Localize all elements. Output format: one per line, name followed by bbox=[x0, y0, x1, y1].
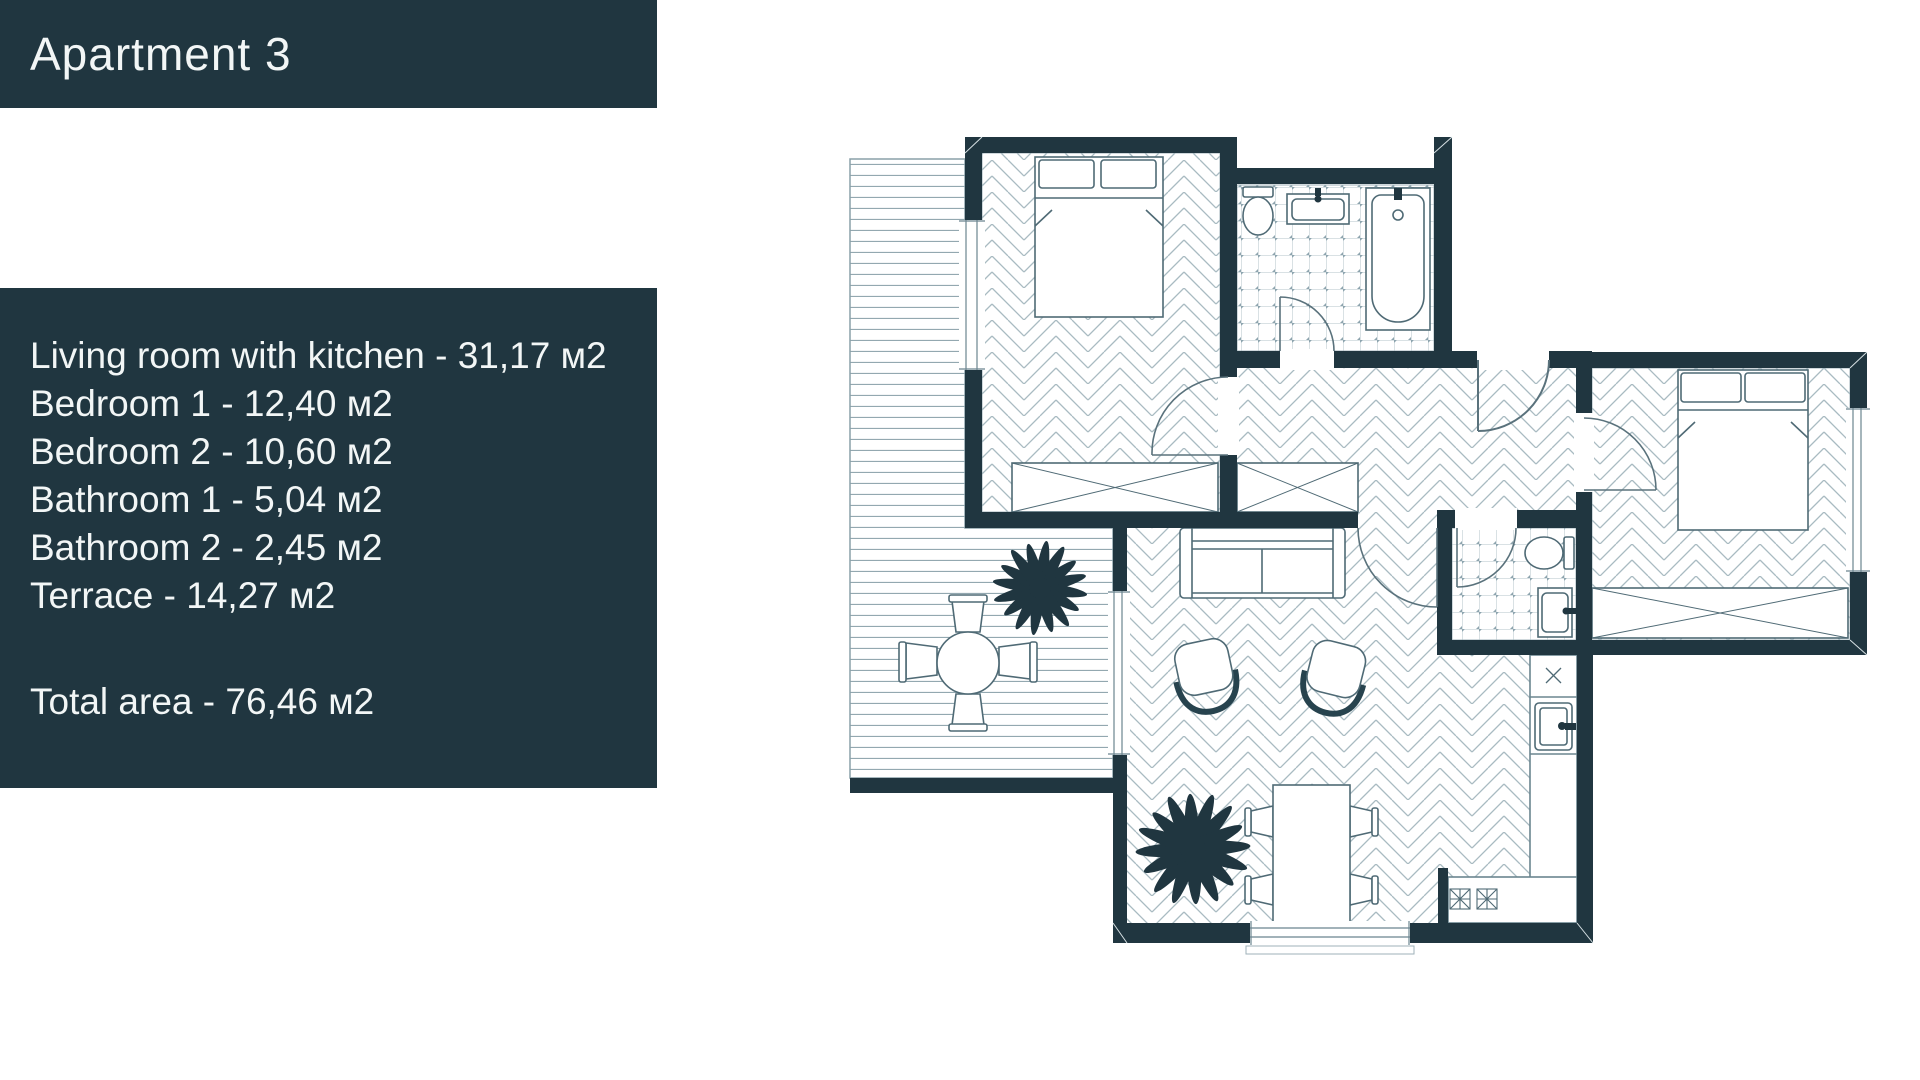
double-bed bbox=[1678, 370, 1808, 530]
round-table bbox=[937, 632, 999, 694]
terrace-parapet bbox=[850, 778, 1113, 793]
toilet bbox=[1243, 187, 1273, 235]
kitchen-sink bbox=[1535, 703, 1576, 750]
dining-table bbox=[1273, 785, 1350, 922]
double-bed bbox=[1035, 157, 1163, 317]
terrace-door-window bbox=[1108, 591, 1130, 755]
sink-vanity bbox=[1287, 188, 1349, 224]
hallway-wardrobe bbox=[1237, 463, 1358, 512]
bedroom-1-window bbox=[959, 220, 985, 370]
floor-plan bbox=[0, 0, 1920, 1080]
bathtub bbox=[1366, 188, 1430, 330]
sofa bbox=[1180, 528, 1345, 598]
bedroom-2-window bbox=[1846, 408, 1870, 572]
living-room-window bbox=[1246, 921, 1414, 954]
wardrobe bbox=[1592, 588, 1848, 638]
toilet bbox=[1525, 537, 1574, 569]
wardrobe bbox=[1012, 463, 1218, 512]
sink bbox=[1538, 588, 1576, 637]
